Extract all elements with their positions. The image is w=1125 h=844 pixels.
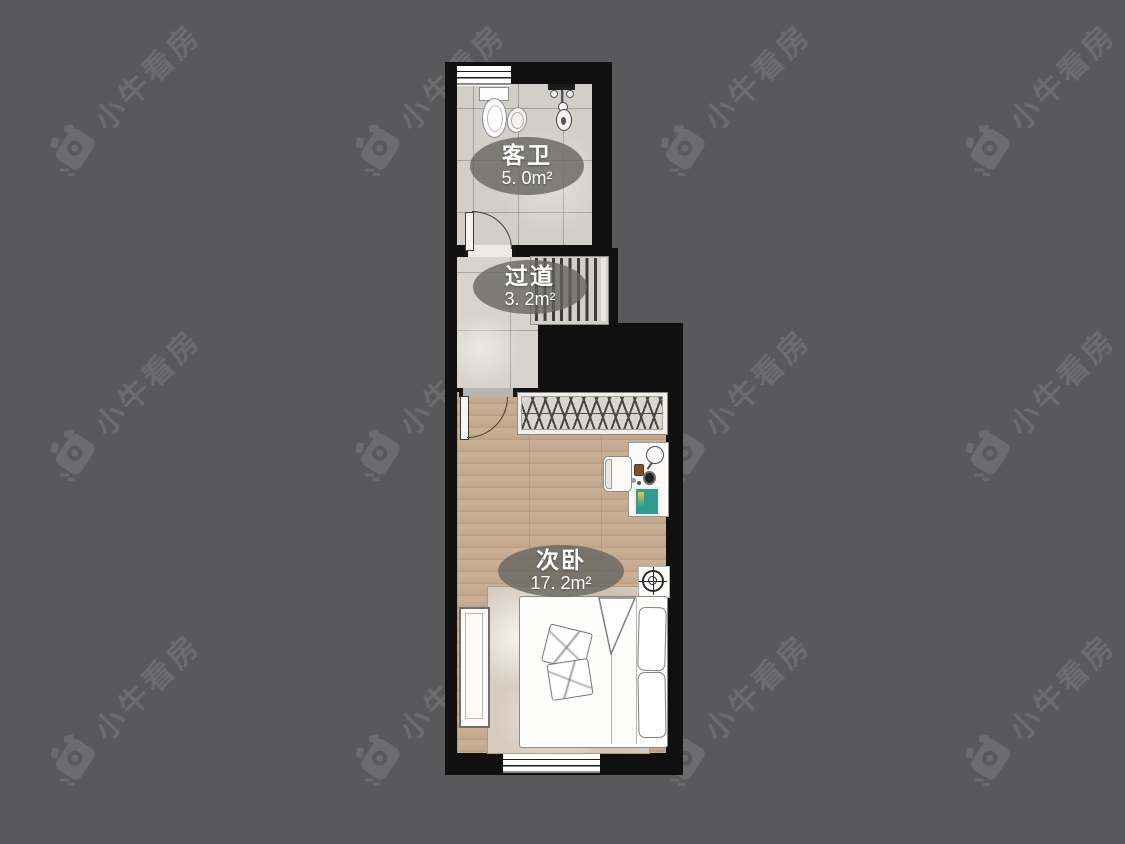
watermark-text: 小牛看房 <box>82 622 209 749</box>
drain-cross-v <box>653 567 654 595</box>
desk-item-icon <box>637 481 641 485</box>
watermark-text: 小牛看房 <box>692 622 819 749</box>
watermark-text: 小牛看房 <box>997 317 1124 444</box>
watermark-text: 小牛看房 <box>997 12 1124 139</box>
watermark: 小牛看房 <box>959 622 1124 787</box>
chair-backrest <box>605 459 612 489</box>
laptop-icon <box>634 487 660 516</box>
floorplan-canvas: 小牛看房 小牛看房 小牛看房 小牛看房 小牛看房 小牛看房 小牛看房 小牛看房 … <box>0 0 1125 844</box>
niu-camera-logo-icon <box>960 726 1021 787</box>
toilet-bowl-inner <box>487 105 503 132</box>
niu-camera-logo-icon <box>960 421 1021 482</box>
desk-box-icon <box>634 464 644 476</box>
room-name: 次卧 <box>536 548 586 573</box>
niu-camera-logo-icon <box>45 726 106 787</box>
sink-basin <box>511 112 524 129</box>
room-label-bedroom: 次卧 17. 2m² <box>498 545 624 597</box>
niu-camera-logo-icon <box>960 116 1021 177</box>
niu-camera-logo-icon <box>655 116 716 177</box>
niu-camera-logo-icon <box>350 726 411 787</box>
watermark-text: 小牛看房 <box>692 12 819 139</box>
blanket-fold <box>598 597 636 655</box>
watermark: 小牛看房 <box>959 12 1124 177</box>
staircase-rail <box>601 258 606 321</box>
watermark-text: 小牛看房 <box>692 317 819 444</box>
watermark: 小牛看房 <box>654 12 819 177</box>
room-name: 过道 <box>505 264 555 289</box>
desk-item-icon <box>631 478 636 483</box>
niu-camera-logo-icon <box>350 421 411 482</box>
room-name: 客卫 <box>502 143 552 168</box>
cushion <box>546 658 593 701</box>
shower-knob <box>550 90 558 98</box>
room-label-bathroom: 客卫 5. 0m² <box>470 137 584 195</box>
watermark: 小牛看房 <box>44 317 209 482</box>
room-area: 3. 2m² <box>504 289 555 310</box>
niu-camera-logo-icon <box>350 116 411 177</box>
watermark: 小牛看房 <box>959 317 1124 482</box>
pillow <box>637 607 667 672</box>
pillow <box>637 672 666 738</box>
bathroom-window <box>457 66 511 86</box>
vanity-mirror-icon <box>646 446 664 464</box>
headboard-edge <box>636 598 637 744</box>
watermark: 小牛看房 <box>44 622 209 787</box>
niu-camera-logo-icon <box>45 116 106 177</box>
room-area: 17. 2m² <box>530 573 591 594</box>
watermark-text: 小牛看房 <box>82 12 209 139</box>
cabinet-panel <box>465 613 483 719</box>
watermark-text: 小牛看房 <box>997 622 1124 749</box>
watermark: 小牛看房 <box>44 12 209 177</box>
bedroom-window <box>503 754 600 773</box>
wardrobe-hangers-icon <box>521 396 663 430</box>
shower-knob <box>566 90 574 98</box>
desk-jar-icon <box>643 471 656 485</box>
room-label-hallway: 过道 3. 2m² <box>473 260 587 314</box>
room-area: 5. 0m² <box>501 168 552 189</box>
watermark-text: 小牛看房 <box>82 317 209 444</box>
shower-head-core <box>561 117 566 125</box>
niu-camera-logo-icon <box>45 421 106 482</box>
